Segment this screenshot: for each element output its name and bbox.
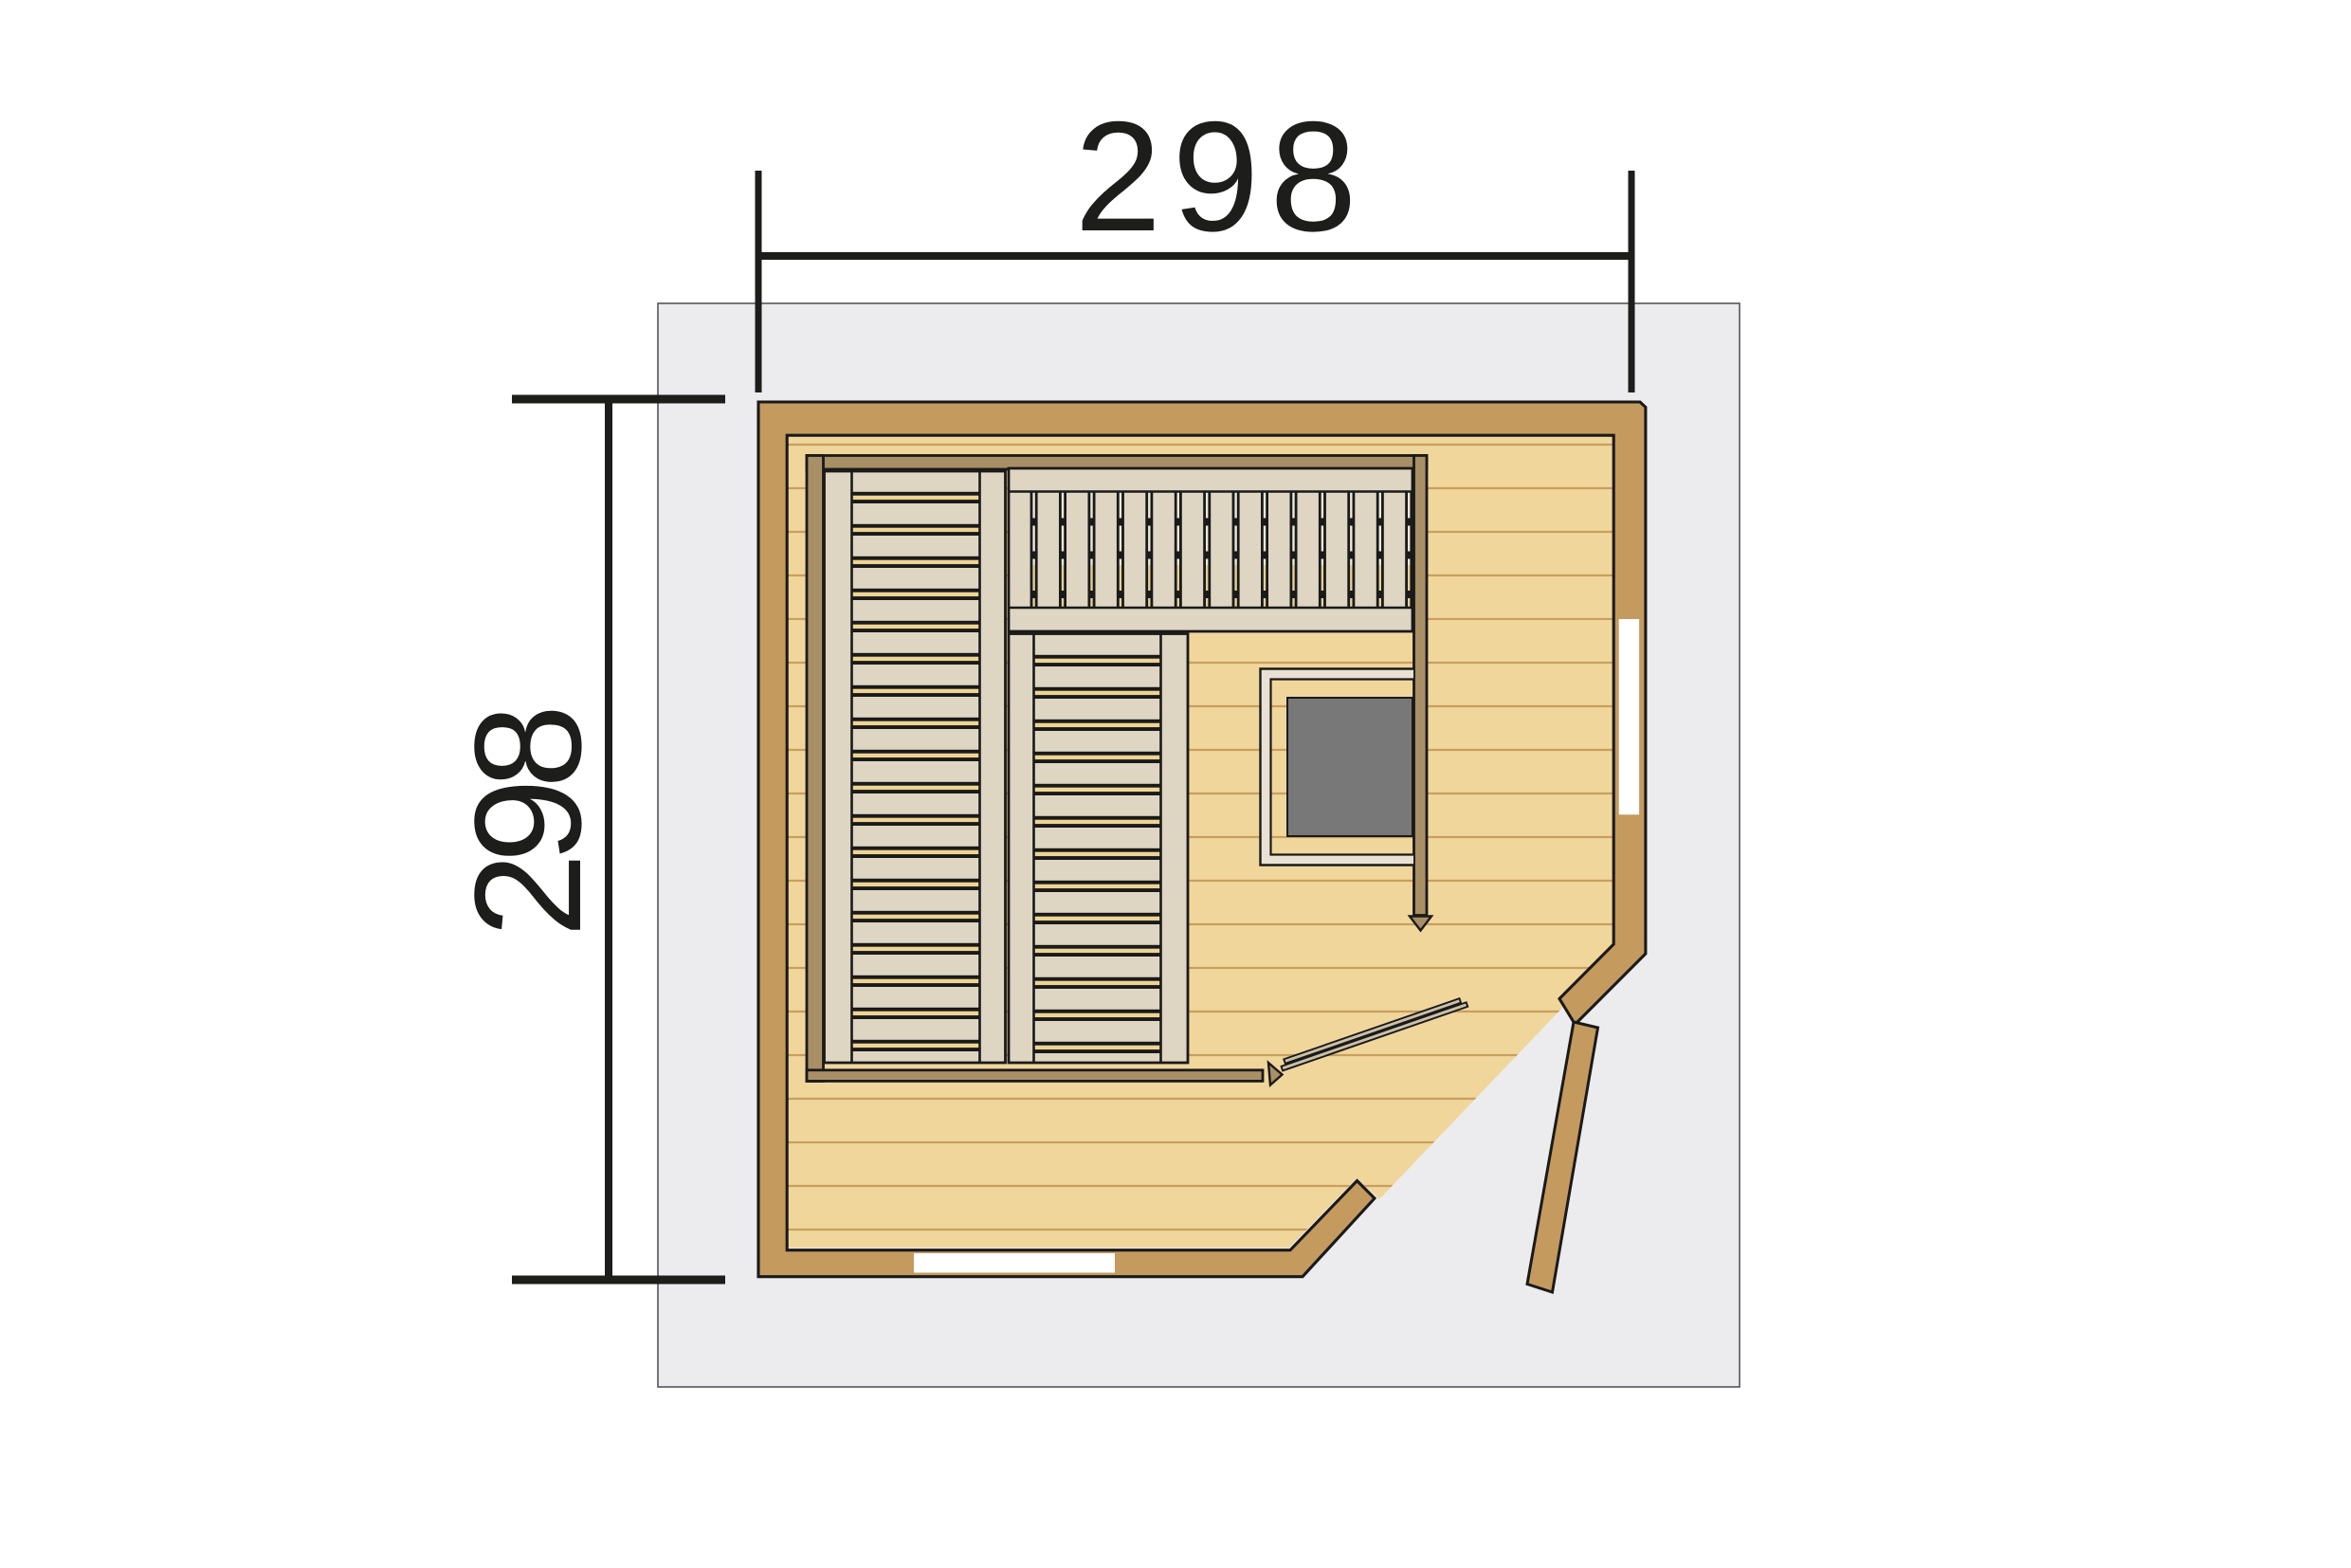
svg-text:298: 298 <box>1074 89 1367 264</box>
svg-text:298: 298 <box>443 710 612 938</box>
